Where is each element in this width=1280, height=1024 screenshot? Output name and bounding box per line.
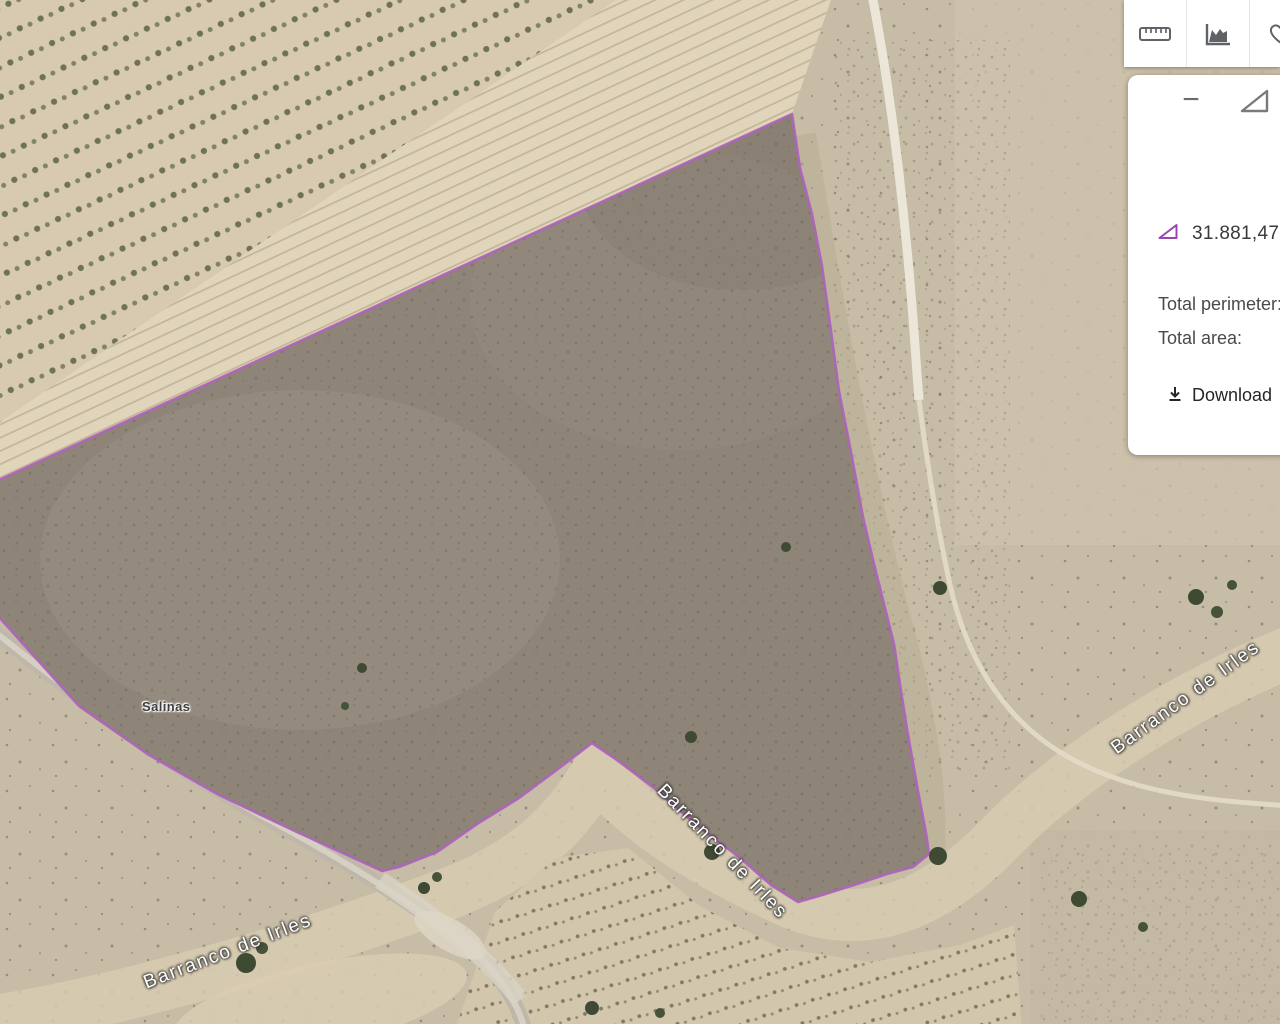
satellite-map[interactable]: Salinas Barranco de Irles Barranco de Ir… — [0, 0, 1280, 1024]
satellite-imagery — [0, 0, 1280, 1024]
area-mode-button[interactable] — [1236, 83, 1274, 121]
favorites-button[interactable] — [1250, 0, 1280, 67]
download-icon — [1168, 386, 1182, 405]
polygon-area-icon — [1240, 88, 1270, 117]
total-area-label: Total area: — [1158, 321, 1280, 355]
totals-block: Total perimeter: Total area: — [1158, 287, 1280, 355]
ruler-icon — [1138, 24, 1172, 44]
measurement-value: 31.881,47 — [1192, 223, 1279, 245]
map-toolbar — [1124, 0, 1280, 67]
download-button[interactable]: Download — [1168, 385, 1272, 406]
area-triangle-icon — [1158, 223, 1178, 245]
measure-distance-button[interactable] — [1124, 0, 1186, 67]
app-window: Salinas Barranco de Irles Barranco de Ir… — [0, 0, 1280, 1024]
total-perimeter-label: Total perimeter: — [1158, 287, 1280, 321]
download-label: Download — [1192, 385, 1272, 406]
heart-icon — [1268, 22, 1280, 46]
collapse-panel-button[interactable]: − — [1172, 81, 1210, 119]
elevation-profile-button[interactable] — [1187, 0, 1249, 67]
elevation-chart-icon — [1204, 21, 1232, 47]
measurement-panel: − 31.881,47 Total perimeter: Total area: — [1128, 75, 1280, 455]
measurement-row: 31.881,47 — [1158, 223, 1279, 245]
